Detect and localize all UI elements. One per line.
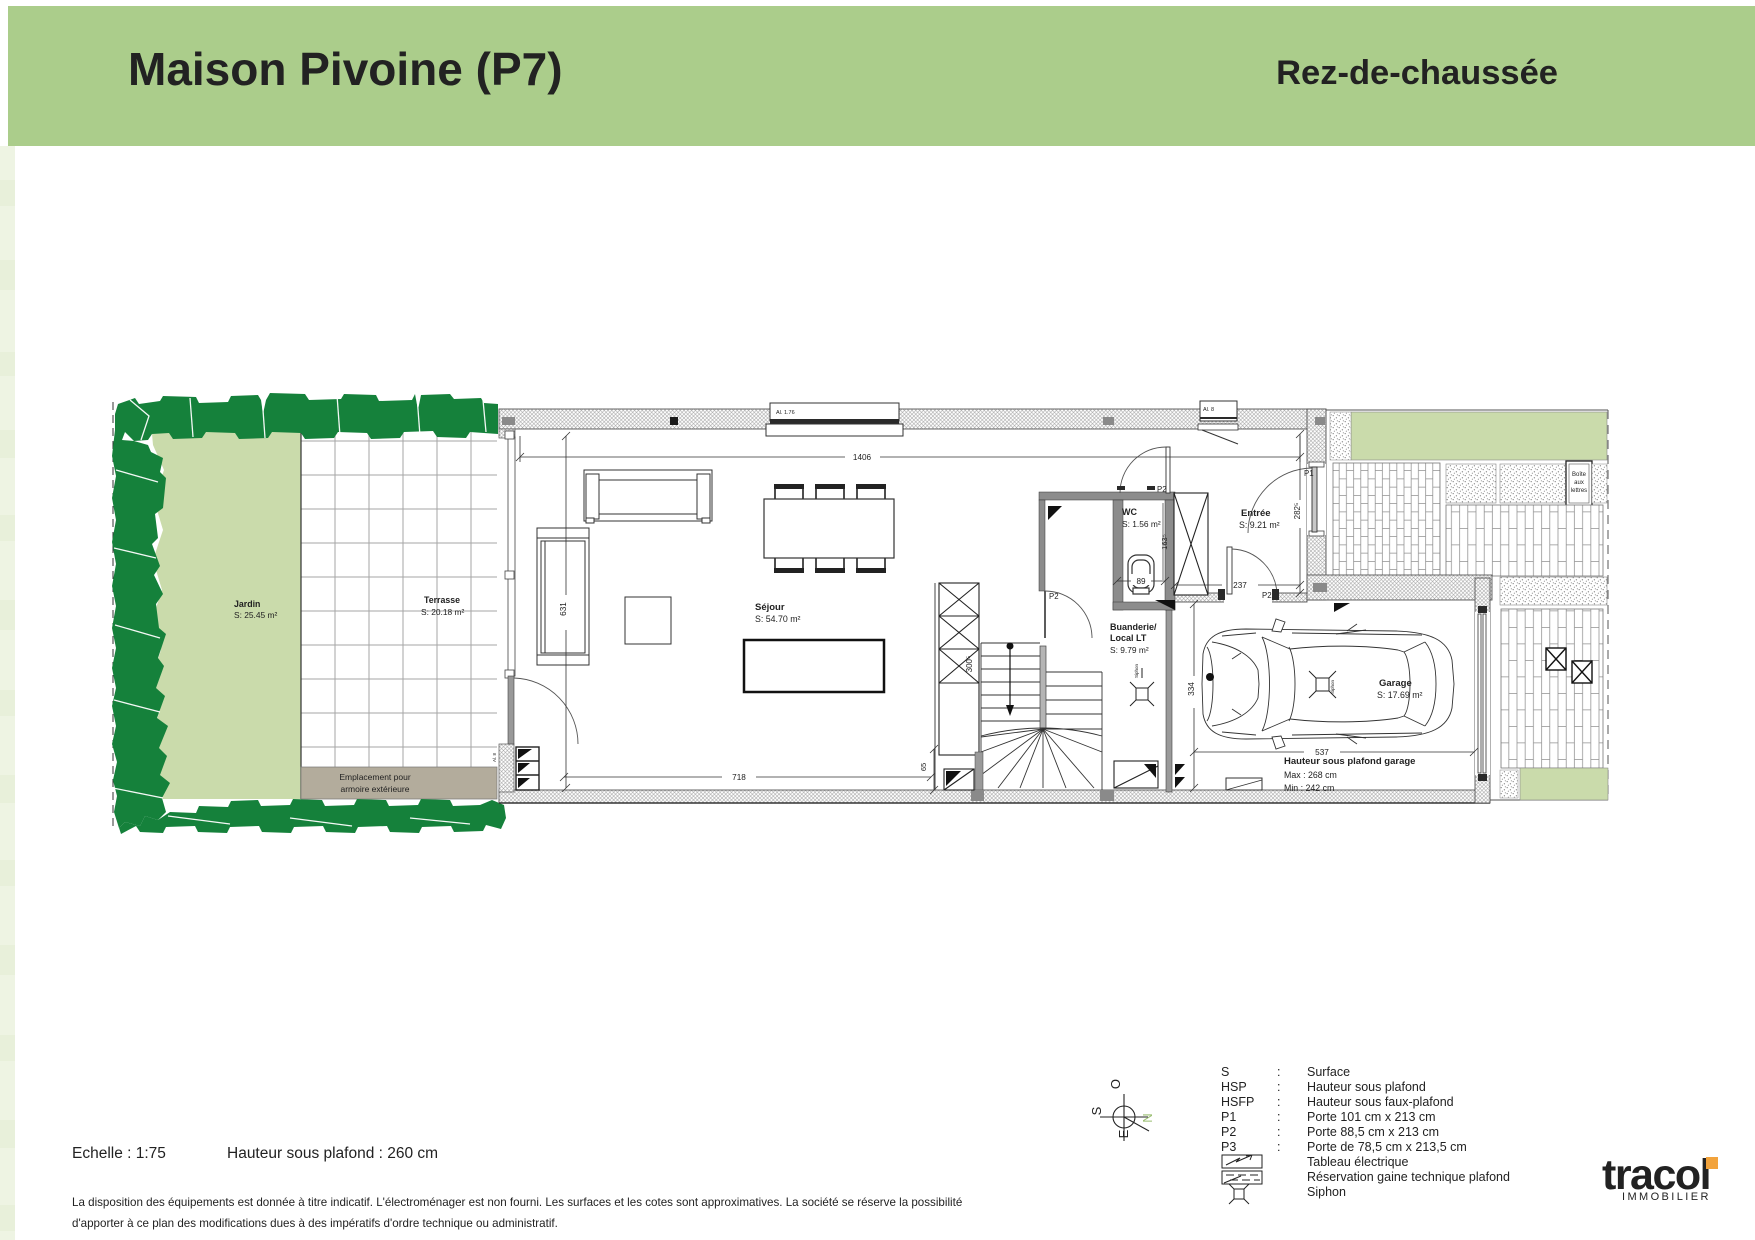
svg-text:Garage: Garage	[1379, 678, 1412, 689]
svg-text:Siphon: Siphon	[1307, 1185, 1346, 1199]
svg-text:1406: 1406	[853, 453, 872, 462]
svg-text:S: 17.69 m²: S: 17.69 m²	[1377, 690, 1423, 700]
svg-text:Emplacement pour: Emplacement pour	[339, 772, 411, 782]
svg-text:Porte de 78,5 cm x 213,5 cm: Porte de 78,5 cm x 213,5 cm	[1307, 1140, 1467, 1154]
svg-text:Porte 101 cm x 213 cm: Porte 101 cm x 213 cm	[1307, 1110, 1436, 1124]
svg-text:P1: P1	[1221, 1110, 1236, 1124]
svg-text:HSP: HSP	[1221, 1080, 1247, 1094]
svg-text:La disposition des équipements: La disposition des équipements est donné…	[72, 1196, 962, 1209]
svg-text:Terrasse: Terrasse	[424, 595, 460, 605]
svg-text::: :	[1277, 1140, 1280, 1154]
svg-text:P2: P2	[1157, 485, 1167, 494]
svg-text::: :	[1277, 1125, 1280, 1139]
svg-text:Buanderie/: Buanderie/	[1110, 622, 1157, 632]
svg-text:Al. 8: Al. 8	[1203, 407, 1214, 413]
svg-text:aux: aux	[1574, 480, 1584, 486]
svg-text:Siphon: Siphon	[1330, 679, 1335, 694]
svg-text:N: N	[1140, 1113, 1155, 1122]
svg-text:Porte 88,5 cm x 213 cm: Porte 88,5 cm x 213 cm	[1307, 1125, 1439, 1139]
svg-text:334: 334	[1187, 682, 1196, 696]
svg-text:S: 9.79 m²: S: 9.79 m²	[1110, 645, 1149, 655]
svg-text::: :	[1277, 1065, 1280, 1079]
svg-text:Hauteur sous faux-plafond: Hauteur sous faux-plafond	[1307, 1095, 1454, 1109]
svg-text:Rez-de-chaussée: Rez-de-chaussée	[1276, 54, 1558, 92]
svg-text:282⁵: 282⁵	[1293, 503, 1302, 520]
svg-text:Surface: Surface	[1307, 1065, 1350, 1079]
svg-text:S: 54.70 m²: S: 54.70 m²	[755, 614, 801, 624]
svg-text:E: E	[1116, 1129, 1131, 1138]
svg-text:300⁵: 300⁵	[965, 656, 974, 673]
svg-text:P2: P2	[1262, 591, 1272, 600]
svg-text:Réservation gaine technique pl: Réservation gaine technique plafond	[1307, 1170, 1510, 1184]
svg-text:Hauteur sous plafond: Hauteur sous plafond	[1307, 1080, 1426, 1094]
svg-text:237: 237	[1233, 581, 1247, 590]
svg-text:HSFP: HSFP	[1221, 1095, 1254, 1109]
svg-text:Entrée: Entrée	[1241, 508, 1271, 519]
svg-text:P1: P1	[1304, 469, 1314, 478]
svg-text:P2: P2	[1049, 592, 1059, 601]
svg-text::: :	[1277, 1095, 1280, 1109]
svg-text:WC: WC	[1122, 507, 1137, 517]
svg-text:Al. 1.76: Al. 1.76	[776, 410, 795, 416]
svg-text:Siphon: Siphon	[1134, 663, 1139, 678]
svg-text:IMMOBILIER: IMMOBILIER	[1622, 1191, 1711, 1203]
svg-text:Séjour: Séjour	[755, 602, 785, 613]
svg-text:89: 89	[1136, 577, 1146, 586]
svg-text:P2: P2	[1221, 1125, 1236, 1139]
svg-text:S: 9.21 m²: S: 9.21 m²	[1239, 520, 1280, 530]
svg-text:631: 631	[559, 602, 568, 616]
svg-text:S: 25.45 m²: S: 25.45 m²	[234, 610, 278, 620]
svg-text:163⁵: 163⁵	[1160, 534, 1169, 550]
svg-text:Hauteur sous plafond garage: Hauteur sous plafond garage	[1284, 756, 1415, 767]
svg-text:S: S	[1221, 1065, 1229, 1079]
svg-text:S: 1.56 m²: S: 1.56 m²	[1122, 519, 1161, 529]
svg-text:d'apporter à ce plan des modif: d'apporter à ce plan des modifications d…	[72, 1217, 558, 1230]
svg-text:Echelle : 1:75: Echelle : 1:75	[72, 1145, 166, 1162]
svg-text::: :	[1277, 1080, 1280, 1094]
svg-text:Boîte: Boîte	[1572, 472, 1587, 478]
svg-text::: :	[1277, 1110, 1280, 1124]
svg-text:Hauteur sous plafond : 260 cm: Hauteur sous plafond : 260 cm	[227, 1145, 438, 1162]
svg-text:Maison Pivoine (P7): Maison Pivoine (P7)	[128, 43, 563, 95]
svg-text:lettres: lettres	[1571, 488, 1587, 494]
svg-text:Min : 242 cm: Min : 242 cm	[1284, 783, 1334, 793]
svg-text:718: 718	[732, 773, 746, 782]
svg-text:P3: P3	[1221, 1140, 1236, 1154]
svg-text:Tableau électrique: Tableau électrique	[1307, 1155, 1409, 1169]
svg-text:537: 537	[1315, 748, 1329, 757]
svg-text:S: 20.18 m²: S: 20.18 m²	[421, 607, 465, 617]
svg-text:Max : 268 cm: Max : 268 cm	[1284, 770, 1337, 780]
svg-text:Al. 8: Al. 8	[492, 752, 497, 762]
svg-text:S: S	[1089, 1106, 1104, 1115]
svg-text:Jardin: Jardin	[234, 599, 260, 609]
svg-text:65: 65	[919, 763, 928, 771]
svg-text:O: O	[1108, 1079, 1123, 1089]
svg-text:Local LT: Local LT	[1110, 633, 1147, 643]
svg-text:armoire extérieure: armoire extérieure	[341, 784, 410, 794]
